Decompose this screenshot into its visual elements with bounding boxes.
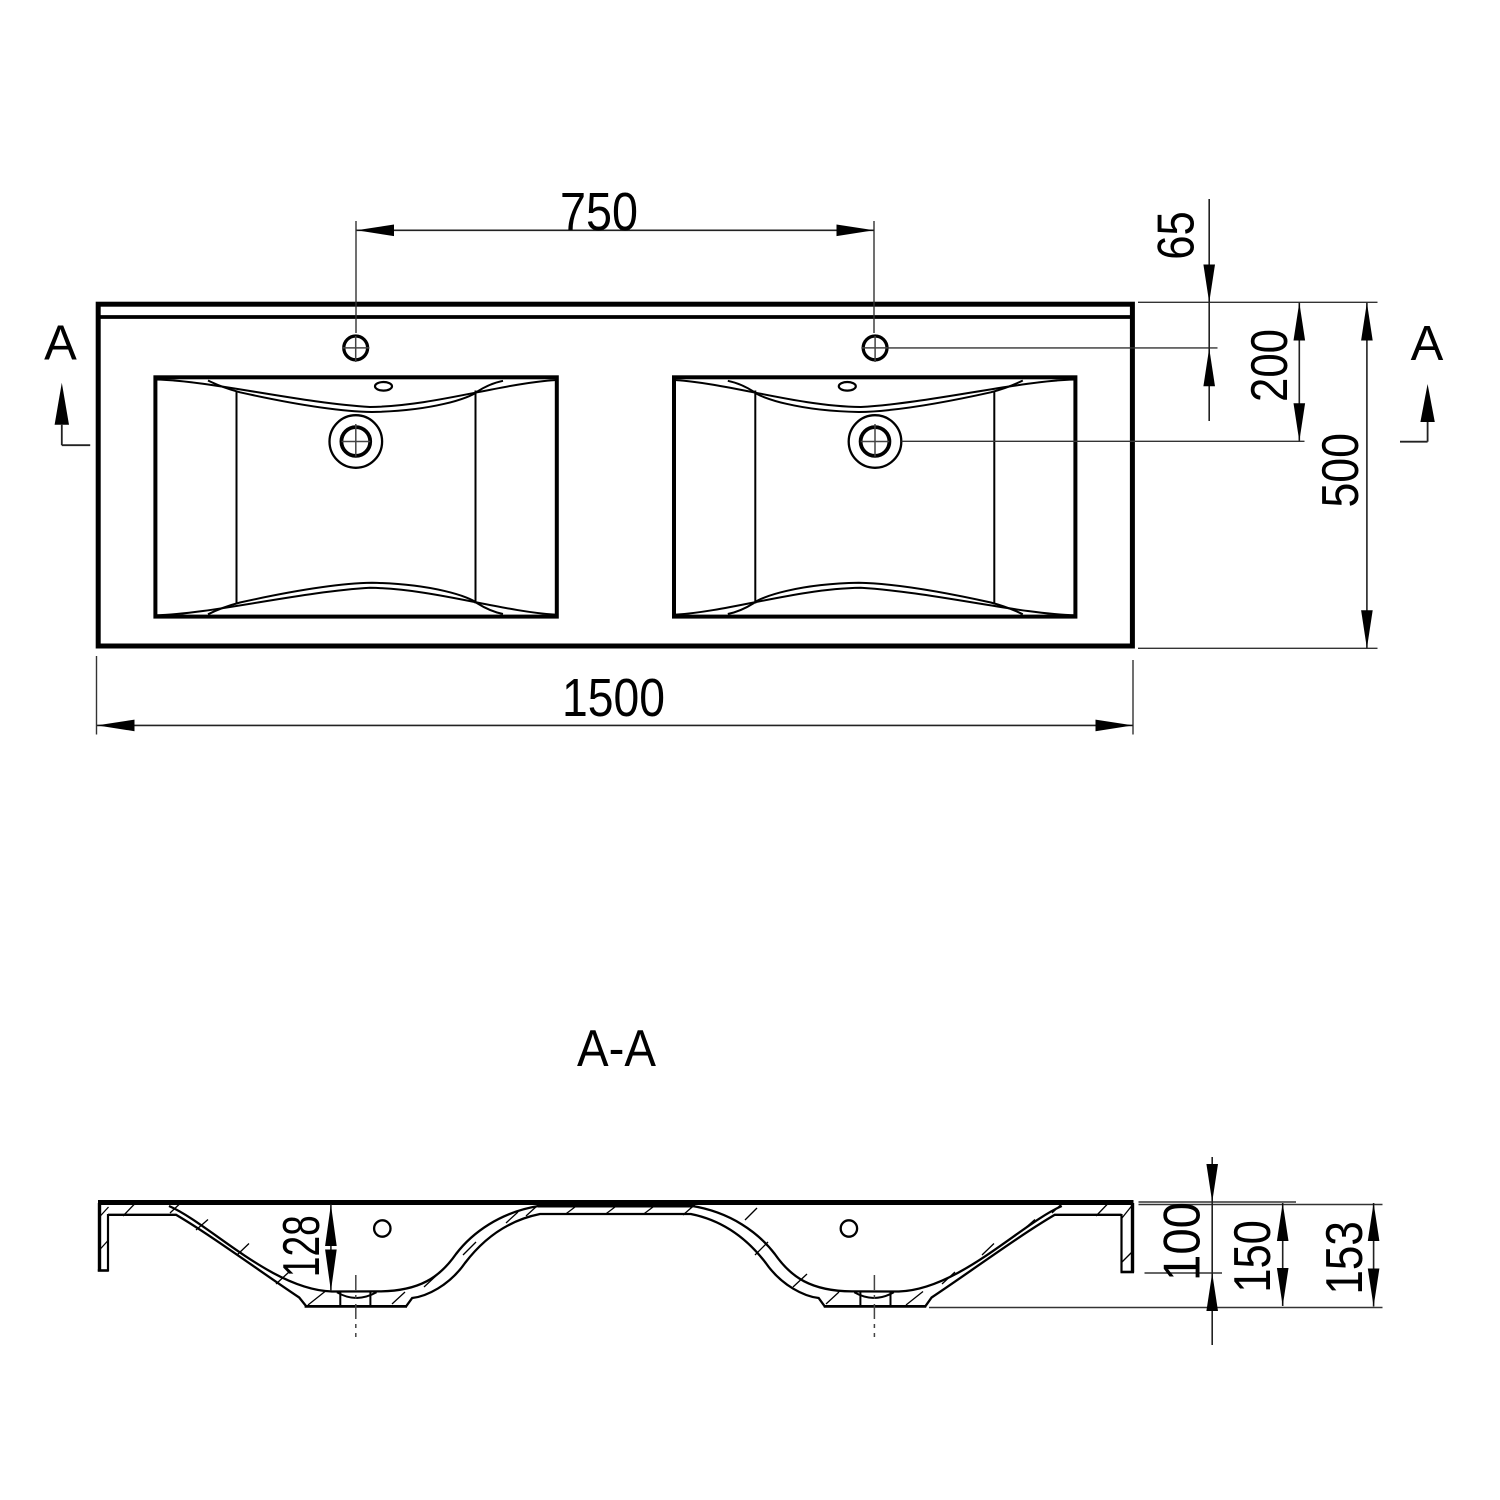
svg-text:65: 65 [1148, 211, 1206, 260]
svg-text:128: 128 [273, 1215, 331, 1277]
svg-text:1500: 1500 [562, 668, 665, 728]
svg-text:150: 150 [1224, 1220, 1282, 1293]
svg-text:153: 153 [1316, 1221, 1374, 1295]
svg-text:A: A [44, 316, 77, 370]
svg-text:500: 500 [1312, 433, 1370, 508]
svg-text:100: 100 [1154, 1202, 1212, 1281]
svg-text:750: 750 [560, 182, 638, 242]
svg-text:A-A: A-A [577, 1020, 656, 1078]
svg-text:200: 200 [1241, 329, 1299, 402]
svg-text:A: A [1411, 317, 1444, 371]
